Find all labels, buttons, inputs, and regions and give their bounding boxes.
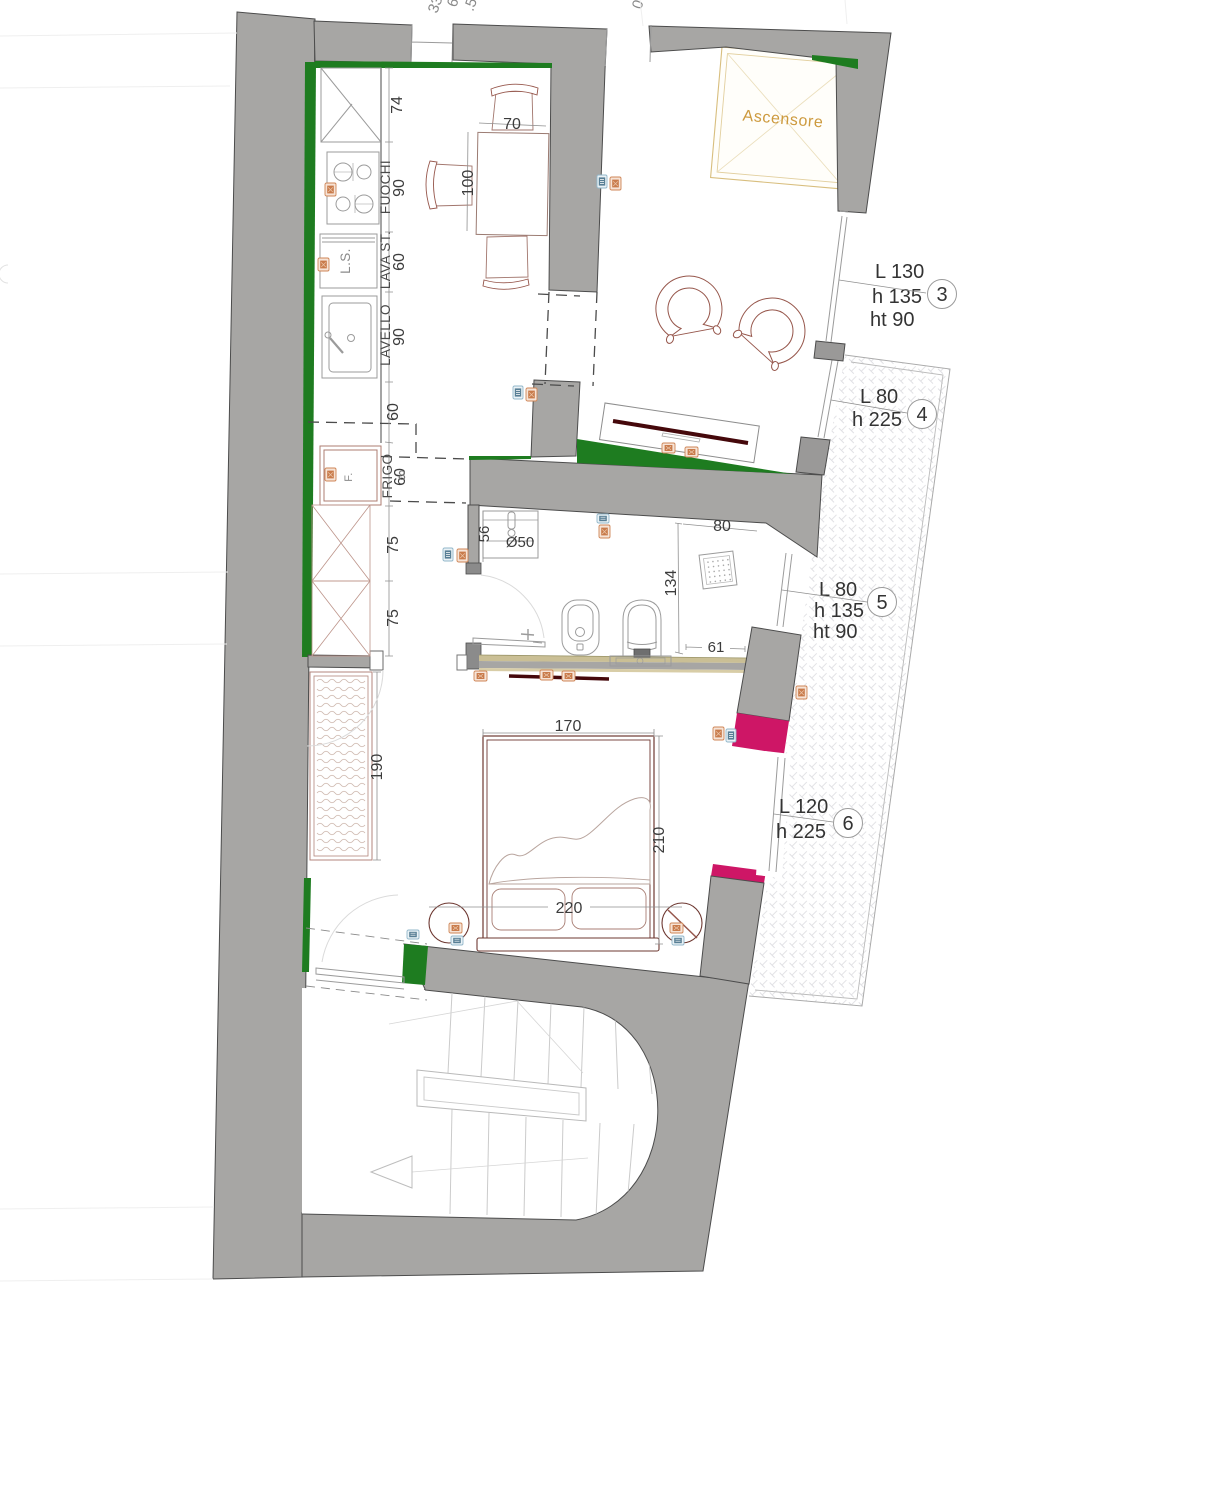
svg-text:90: 90: [391, 328, 408, 346]
svg-text:6: 6: [842, 813, 853, 835]
svg-text:FUOCHI: FUOCHI: [378, 160, 393, 214]
svg-text:90: 90: [391, 179, 408, 197]
svg-text:h 135: h 135: [872, 286, 922, 308]
svg-text:60: 60: [385, 403, 402, 421]
svg-text:FRIGO: FRIGO: [380, 454, 395, 499]
svg-text:3: 3: [936, 284, 947, 306]
svg-text:75: 75: [385, 536, 402, 554]
svg-text:60: 60: [391, 253, 408, 271]
svg-text:56: 56: [476, 526, 493, 543]
svg-text:74: 74: [389, 96, 406, 114]
svg-text:L 130: L 130: [875, 261, 924, 283]
svg-text:5: 5: [876, 592, 887, 614]
svg-text:LAVA ST.: LAVA ST.: [378, 231, 393, 289]
svg-text:8: 8: [398, 467, 406, 483]
svg-text:220: 220: [556, 900, 583, 917]
svg-text:L 120: L 120: [779, 796, 828, 818]
svg-text:80: 80: [713, 518, 731, 535]
svg-text:70: 70: [503, 116, 521, 133]
svg-text:4: 4: [916, 404, 927, 426]
svg-text:ht 90: ht 90: [870, 309, 914, 331]
svg-text:190: 190: [369, 754, 386, 781]
svg-text:h 225: h 225: [852, 409, 902, 431]
svg-text:L 80: L 80: [860, 386, 898, 408]
svg-text:L.S.: L.S.: [338, 248, 353, 274]
svg-text:75: 75: [385, 609, 402, 627]
svg-text:61: 61: [708, 639, 725, 656]
svg-text:170: 170: [555, 718, 582, 735]
svg-text:134: 134: [663, 570, 680, 597]
svg-text:h 225: h 225: [776, 821, 826, 843]
svg-text:h 135: h 135: [814, 600, 864, 622]
svg-text:Ø50: Ø50: [506, 534, 534, 551]
svg-text:210: 210: [651, 827, 668, 854]
svg-text:ht 90: ht 90: [813, 621, 857, 643]
svg-text:LAVELLO: LAVELLO: [378, 304, 393, 366]
svg-text:100: 100: [460, 170, 477, 197]
svg-text:F.: F.: [343, 472, 355, 481]
